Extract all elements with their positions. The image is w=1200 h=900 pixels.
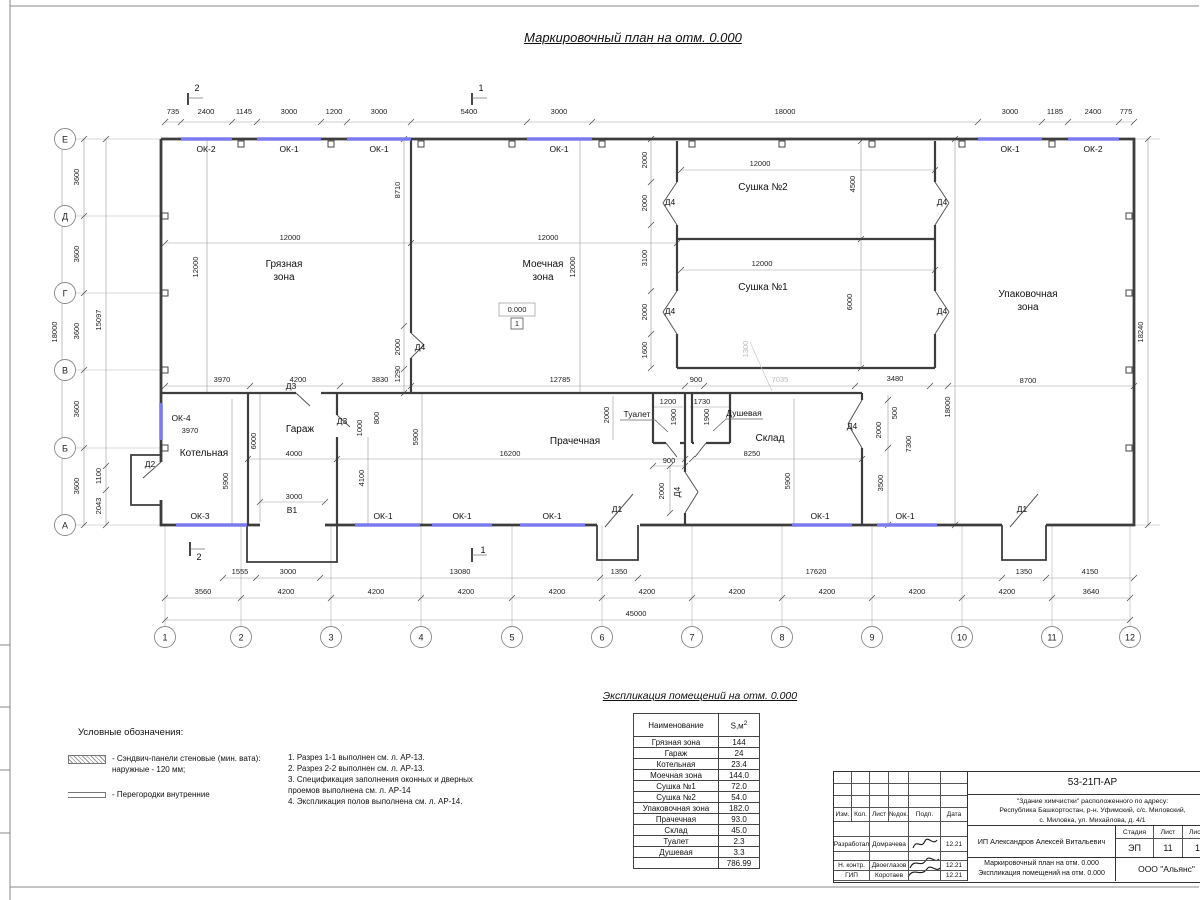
- window-label: ОК-1: [542, 511, 561, 521]
- dim-label: 12000: [280, 233, 301, 242]
- dim-label: 5400: [461, 107, 478, 116]
- dim-label: 8700: [1020, 376, 1037, 385]
- dim-ticks: [59, 119, 1151, 623]
- dim-label: 3600: [72, 169, 81, 186]
- table-row: Туалет2.3: [634, 836, 760, 847]
- sheet-value: 11: [1154, 839, 1183, 857]
- table-row: Сушка №172.0: [634, 781, 760, 792]
- room-label: Душевая: [726, 408, 762, 418]
- dim-label: 1350: [611, 567, 628, 576]
- sheet-label: Лист: [1154, 826, 1183, 838]
- dim-label: 16200: [500, 449, 521, 458]
- table-row: Душевая3.3: [634, 847, 760, 858]
- dim-label: 6000: [845, 294, 854, 311]
- axis-number: 10: [957, 633, 967, 643]
- client-name: ИП Александров Алексей Витальевич: [968, 826, 1116, 857]
- door-label: Д4: [937, 197, 948, 207]
- axis-letter: В: [62, 366, 68, 376]
- door-label: Д1: [1017, 504, 1028, 514]
- dim-label: 18240: [1136, 322, 1145, 343]
- dim-label: 3560: [195, 587, 212, 596]
- dim-label: 17620: [806, 567, 827, 576]
- room-label: Грязная: [266, 259, 303, 270]
- dim-label: 4150: [1082, 567, 1099, 576]
- room-label: Сушка №1: [738, 282, 788, 293]
- signature-cell: [909, 871, 941, 881]
- dim-label: 13080: [450, 567, 471, 576]
- window-label: ОК-1: [549, 144, 568, 154]
- col-podp: Подп.: [909, 808, 941, 822]
- room-label: Упаковочная: [998, 289, 1057, 300]
- axis-number: 4: [418, 633, 423, 643]
- room-label: Сушка №2: [738, 182, 788, 193]
- drawing-title-row: Маркировочный план на отм. 0.000 Эксплик…: [968, 856, 1200, 881]
- dim-label: 3970: [214, 375, 231, 384]
- door-label: Д4: [665, 306, 676, 316]
- section-number: 2: [194, 83, 199, 93]
- dim-label: 900: [663, 456, 676, 465]
- vestibules: [131, 455, 1046, 562]
- dim-label: 12785: [550, 375, 571, 384]
- dim-label: 500: [890, 407, 899, 420]
- dim-label: 1350: [1016, 567, 1033, 576]
- room-label: зона: [1017, 302, 1039, 313]
- legend-item-1-line1: - Сэндвич-панели стеновые (мин. вата):: [112, 753, 261, 764]
- dim-label: 1900: [669, 409, 678, 426]
- dim-label: 8250: [744, 449, 761, 458]
- dim-label-faint: 7035: [772, 375, 789, 384]
- dim-label: 1730: [694, 397, 711, 406]
- schedule-title: Экспликация помещений на отм. 0.000: [595, 690, 805, 702]
- company-name: ООО "Альянс": [1116, 856, 1200, 881]
- dim-label: 2000: [602, 407, 611, 424]
- dim-label: 12000: [750, 159, 771, 168]
- dim-label: 1600: [640, 342, 649, 359]
- name-gip: Коротаев: [870, 871, 909, 881]
- drawing-title-line: Экспликация помещений на отм. 0.000: [968, 869, 1115, 879]
- table-row: Котельная23.4: [634, 759, 760, 770]
- door-label: Д4: [665, 197, 676, 207]
- schedule-total-row: 786.99: [634, 858, 760, 869]
- axis-number: 6: [599, 633, 604, 643]
- room-label: Котельная: [180, 448, 228, 459]
- door-label: Д4: [672, 486, 682, 497]
- dim-label: 1200: [326, 107, 343, 116]
- role-developer: Разработал: [834, 837, 870, 852]
- axis-number: 2: [238, 633, 243, 643]
- dim-label: 5900: [783, 473, 792, 490]
- name-developer: Домрачева: [870, 837, 909, 852]
- dim-label: 3600: [72, 401, 81, 418]
- col-ndok: №док.: [889, 808, 909, 822]
- notes-list: 1. Разрез 1-1 выполнен см. л. АР-13. 2. …: [288, 752, 473, 807]
- dim-label: 4200: [368, 587, 385, 596]
- dim-label: 4200: [549, 587, 566, 596]
- legend-item-2: - Перегородки внутренние: [112, 790, 210, 799]
- dim-label: 3970: [182, 426, 199, 435]
- axis-letter: Д: [62, 212, 68, 222]
- dim-label: 1555: [232, 567, 249, 576]
- dim-label: 1290: [393, 366, 402, 383]
- dim-label: 4200: [639, 587, 656, 596]
- dim-label: 4200: [278, 587, 295, 596]
- sheets-label: Листов: [1183, 826, 1200, 838]
- faint-leader: [750, 342, 772, 391]
- dim-lines: [62, 122, 1148, 620]
- axis-number: 8: [779, 633, 784, 643]
- room-label: Прачечная: [550, 436, 600, 447]
- role-ncontrol: Н. контр.: [834, 861, 870, 871]
- legend-item-1-line2: наружные - 120 мм;: [112, 764, 261, 775]
- dim-label: 2400: [1085, 107, 1102, 116]
- date-ncontrol: 12.21: [941, 861, 967, 871]
- dim-label: 4200: [909, 587, 926, 596]
- dim-label: 3000: [551, 107, 568, 116]
- room-label: зона: [532, 272, 554, 283]
- note-line: 4. Экспликация полов выполнена см. л. АР…: [288, 796, 473, 807]
- axis-number: 3: [328, 633, 333, 643]
- dim-label: 2000: [640, 304, 649, 321]
- window-label: ОК-3: [190, 511, 209, 521]
- dim-label: 18000: [943, 397, 952, 418]
- dim-label: 4200: [458, 587, 475, 596]
- dim-label: 2400: [198, 107, 215, 116]
- axis-number: 9: [869, 633, 874, 643]
- dim-label: 3830: [372, 375, 389, 384]
- grid-axis-numbers: [155, 627, 1141, 648]
- legend-item-1: - Сэндвич-панели стеновые (мин. вата): н…: [112, 753, 261, 775]
- schedule-col-name: Наименование: [634, 714, 719, 737]
- note-line: 1. Разрез 1-1 выполнен см. л. АР-13.: [288, 752, 473, 763]
- dim-label: 1000: [355, 420, 364, 437]
- axis-letter: Е: [62, 135, 68, 145]
- window-label: ОК-2: [1083, 144, 1102, 154]
- table-row: Грязная зона144: [634, 737, 760, 748]
- dim-label: 1100: [94, 468, 103, 484]
- partition-swatch: [68, 792, 106, 798]
- name-ncontrol: Двоеглазов: [870, 861, 909, 871]
- dim-label: 3500: [876, 475, 885, 492]
- col-list: Лист: [870, 808, 889, 822]
- table-row: Прачечная93.0: [634, 814, 760, 825]
- client-stage-row: ИП Александров Алексей Витальевич Стадия…: [968, 826, 1200, 858]
- dim-label: 6000: [249, 433, 258, 450]
- window-label: ОК-1: [810, 511, 829, 521]
- elevation-label: 0.000: [508, 305, 527, 314]
- dim-label: 4100: [357, 470, 366, 487]
- col-kol: Кол.: [852, 808, 870, 822]
- dim-label: 5900: [411, 429, 420, 446]
- axis-number: 11: [1047, 633, 1056, 643]
- room-label: зона: [273, 272, 295, 283]
- dim-label: 2000: [393, 339, 402, 356]
- door-label: Д4: [415, 342, 426, 352]
- dim-label: 4200: [819, 587, 836, 596]
- dim-label-faint: 1300: [741, 341, 750, 358]
- schedule-header-row: Наименование S,м2: [634, 714, 760, 737]
- axis-number: 7: [689, 633, 694, 643]
- window-label: ОК-1: [369, 144, 388, 154]
- table-row: Гараж24: [634, 748, 760, 759]
- dim-label: 3100: [640, 250, 649, 267]
- axis-letter: А: [62, 521, 68, 531]
- dim-label: 4200: [290, 375, 307, 384]
- dim-label: 1900: [702, 409, 711, 426]
- door-label: Д3: [337, 416, 348, 426]
- table-row: Упаковочная зона182.0: [634, 803, 760, 814]
- dim-label: 3000: [1002, 107, 1019, 116]
- signature-cell: [909, 861, 941, 871]
- dim-label: 12000: [752, 259, 773, 268]
- col-data: Дата: [941, 808, 967, 822]
- dim-label: 800: [372, 412, 381, 425]
- sandwich-panel-swatch: [68, 755, 106, 764]
- note-line: 2. Разрез 2-2 выполнен см. л. АР-13.: [288, 763, 473, 774]
- room-schedule-table: Наименование S,м2 Грязная зона144 Гараж2…: [633, 713, 760, 869]
- sheets-value: 14: [1183, 839, 1200, 857]
- gate-label: В1: [287, 505, 298, 515]
- door-label: Д2: [145, 459, 156, 469]
- door-swings: [143, 182, 1038, 527]
- dim-label: 3480: [887, 374, 904, 383]
- title-block-right: 53-21П-АР "Здание химчистки" расположенн…: [968, 772, 1200, 881]
- dim-label: 3000: [281, 107, 298, 116]
- window-label: ОК-1: [373, 511, 392, 521]
- dim-label: 3640: [1083, 587, 1100, 596]
- door-label: Д1: [612, 504, 623, 514]
- dim-label: 12000: [568, 257, 577, 278]
- interior-walls: [161, 139, 935, 525]
- window-label: ОК-1: [1000, 144, 1019, 154]
- dim-label: 775: [1120, 107, 1133, 116]
- axis-letter: Б: [62, 444, 68, 454]
- stage-subtable: Стадия Лист Листов ЭП 11 14: [1116, 826, 1200, 857]
- section-number: 1: [480, 545, 485, 555]
- floor-type-mark: 1: [515, 319, 519, 328]
- col-izm: Изм.: [834, 808, 852, 822]
- address-line: "Здание химчистки" расположенного по адр…: [968, 797, 1200, 806]
- dim-label: 1145: [236, 107, 252, 116]
- dim-label: 45000: [626, 609, 647, 618]
- stage-value: ЭП: [1116, 839, 1154, 857]
- note-line: 3. Спецификация заполнения оконных и две…: [288, 774, 473, 785]
- door-label: Д4: [847, 421, 858, 431]
- dim-label: 4500: [848, 176, 857, 193]
- drawing-titles: Маркировочный план на отм. 0.000 Эксплик…: [968, 856, 1116, 881]
- dim-label: 4000: [286, 449, 303, 458]
- dim-label: 735: [167, 107, 180, 116]
- table-row: Сушка №254.0: [634, 792, 760, 803]
- room-label: Туалет: [624, 409, 651, 419]
- title-block-left: Изм. Кол. Лист №док. Подп. Дата Разработ…: [834, 772, 968, 881]
- signature-cell: [909, 837, 941, 852]
- title-block: Изм. Кол. Лист №док. Подп. Дата Разработ…: [833, 771, 1200, 883]
- dim-label: 3600: [72, 478, 81, 495]
- dim-label: 12000: [538, 233, 559, 242]
- window-label: ОК-1: [895, 511, 914, 521]
- axis-number: 5: [509, 633, 514, 643]
- door-label: Д4: [937, 306, 948, 316]
- note-line: проемов выполнена см. л. АР-14: [288, 785, 473, 796]
- role-gip: ГИП: [834, 871, 870, 881]
- dim-label: 4200: [729, 587, 746, 596]
- dim-label: 1185: [1047, 107, 1063, 116]
- window-label: ОК-2: [196, 144, 215, 154]
- section-number: 2: [196, 552, 201, 562]
- dim-label: 3600: [72, 246, 81, 263]
- dim-label: 18000: [775, 107, 796, 116]
- dim-label: 7300: [904, 436, 913, 453]
- dim-label: 12000: [191, 257, 200, 278]
- window-label: ОК-1: [452, 511, 471, 521]
- wall-pilasters: [162, 141, 1132, 451]
- dim-label: 2043: [94, 498, 103, 515]
- schedule-col-area: S,м2: [719, 714, 760, 737]
- doc-number: 53-21П-АР: [968, 772, 1200, 795]
- legend-title: Условные обозначения:: [78, 727, 183, 738]
- dim-label: 900: [690, 375, 703, 384]
- dim-label: 3000: [286, 492, 303, 501]
- drawing-title-line: Маркировочный план на отм. 0.000: [968, 859, 1115, 869]
- room-label: Гараж: [286, 424, 315, 435]
- project-address: "Здание химчистки" расположенного по адр…: [968, 795, 1200, 826]
- date-gip: 12.21: [941, 871, 967, 881]
- address-line: Республика Башкортостан, р-н. Уфимский, …: [968, 806, 1200, 815]
- dim-label: 3000: [371, 107, 388, 116]
- dim-label: 2000: [640, 152, 649, 169]
- section-marks: [188, 93, 472, 562]
- dim-label: 1200: [660, 397, 677, 406]
- dim-label: 4200: [999, 587, 1016, 596]
- stage-label: Стадия: [1116, 826, 1154, 838]
- table-row: Моечная зона144.0: [634, 770, 760, 781]
- window-label: ОК-4: [171, 413, 190, 423]
- dim-label: 15097: [94, 310, 103, 331]
- table-row: Склад45.0: [634, 825, 760, 836]
- axis-number: 1: [162, 633, 167, 643]
- dim-label: 3600: [72, 323, 81, 340]
- section-number: 1: [478, 83, 483, 93]
- axis-number: 12: [1125, 633, 1135, 643]
- drawing-sheet: { "sheet": { "plan_title": "Маркировочны…: [0, 0, 1200, 900]
- date-developer: 12.21: [941, 837, 967, 852]
- dim-label: 3000: [280, 567, 297, 576]
- dim-label: 5900: [221, 473, 230, 490]
- axis-letter: Г: [63, 289, 68, 299]
- room-label: Склад: [756, 433, 785, 444]
- address-line: с. Миловка, ул. Михайлова, д. 4/1: [968, 816, 1200, 825]
- room-label: Моечная: [523, 259, 564, 270]
- window-label: ОК-1: [279, 144, 298, 154]
- dim-label: 8710: [393, 182, 402, 199]
- dim-label: 2000: [657, 483, 666, 500]
- dim-label: 2000: [640, 195, 649, 212]
- dim-label: 18000: [50, 322, 59, 343]
- dim-label: 2000: [874, 422, 883, 439]
